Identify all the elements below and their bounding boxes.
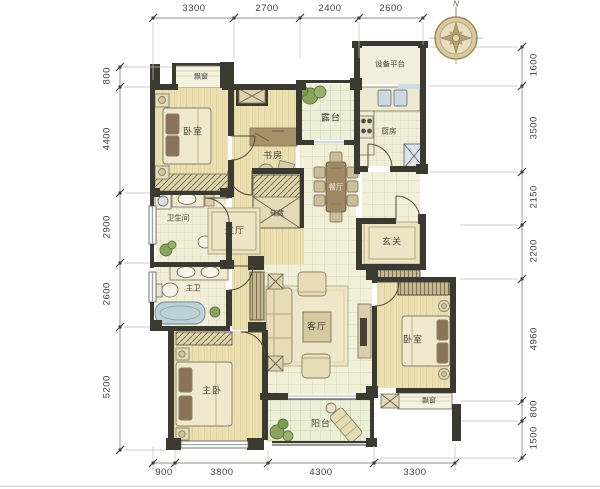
room-label-kitchen: 厨房	[382, 127, 397, 135]
dim-top-3: 2400	[300, 4, 360, 14]
room-label-balcony: 阳台	[311, 420, 331, 429]
dim-right-4: 2200	[529, 229, 539, 273]
dim-right-7: 1500	[529, 416, 539, 460]
page-bottom-divider	[0, 486, 600, 488]
dim-right-5: 4960	[529, 317, 539, 361]
dim-bottom-2: 3800	[192, 468, 252, 478]
dim-left-3: 2900	[102, 205, 112, 249]
dim-bottom-3: 4300	[291, 468, 351, 478]
room-label-living: 客厅	[307, 323, 327, 332]
room-label-storage: 储藏	[270, 211, 284, 218]
floor-plan-page: 飘窗 卧室 书房 露台 设备平台 厨房 餐厅 玄关 卫生间 过厅 储藏 主卫 主…	[0, 0, 600, 489]
dim-top-1: 3300	[164, 4, 224, 14]
dim-left-5: 5200	[102, 365, 112, 409]
dim-bottom-1: 900	[134, 468, 194, 478]
room-label-bathroom: 卫生间	[167, 214, 190, 222]
room-label-bedroom-top: 卧室	[183, 128, 203, 137]
room-label-bay-window-top: 飘窗	[194, 74, 208, 81]
compass-rose	[429, 7, 483, 64]
compass-north-label: N	[453, 0, 459, 9]
room-label-entry: 玄关	[382, 238, 402, 247]
room-label-hallway: 过厅	[225, 227, 245, 236]
dim-right-1: 1600	[529, 43, 539, 87]
dim-bottom-4: 3300	[385, 468, 445, 478]
room-label-master-bath: 主卫	[186, 284, 201, 292]
room-label-equipment-platform: 设备平台	[375, 60, 405, 68]
room-label-study: 书房	[263, 152, 283, 161]
room-label-dining: 餐厅	[329, 183, 344, 191]
room-label-master-bedroom: 主卧	[202, 387, 222, 396]
dim-left-4: 2600	[102, 272, 112, 316]
room-label-bedroom-right: 卧室	[403, 336, 423, 345]
dim-top-2: 2700	[237, 4, 297, 14]
dim-right-3: 2150	[529, 175, 539, 219]
room-label-bay-window-bottom: 飘窗	[422, 398, 436, 405]
room-label-terrace: 露台	[321, 114, 341, 123]
dim-left-1: 800	[102, 54, 112, 98]
dim-left-2: 4400	[102, 117, 112, 161]
dim-right-2: 3500	[529, 106, 539, 150]
dim-top-4: 2600	[361, 4, 421, 14]
floor-plan-canvas	[0, 0, 600, 489]
